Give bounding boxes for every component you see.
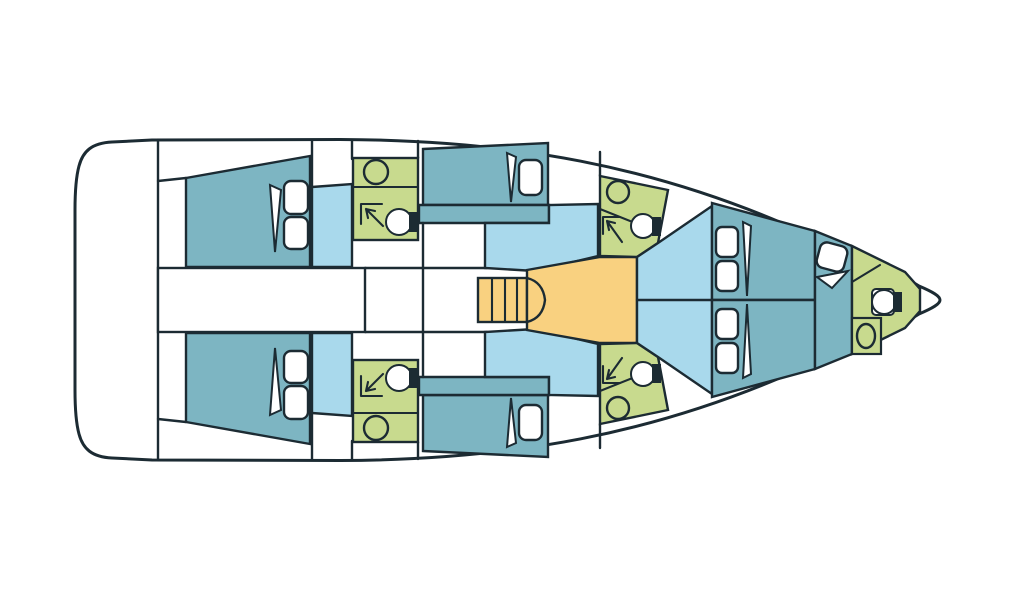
pillow-icon	[519, 160, 542, 195]
stair-steps	[478, 278, 527, 322]
pillow-icon	[519, 405, 542, 440]
toilet-icon	[386, 365, 419, 391]
pillow-icon	[815, 241, 849, 273]
bed-foot	[419, 377, 549, 395]
pillow-icon	[284, 351, 308, 383]
yacht-floor-plan: Sailing yacht deck plan — top view, bow …	[0, 0, 1024, 600]
yacht-deck-plan: Sailing yacht deck plan — top view, bow …	[0, 0, 1024, 600]
head-bow	[852, 246, 920, 354]
cabin-seat	[312, 333, 352, 416]
pillow-icon	[716, 309, 738, 339]
bed-foot	[419, 205, 549, 223]
pillow-icon	[284, 181, 308, 214]
toilet-icon	[631, 214, 661, 238]
pillow-icon	[716, 227, 738, 257]
toilet-icon	[386, 209, 419, 235]
head-aft-port	[353, 158, 419, 240]
pillow-icon	[716, 261, 738, 291]
sink-icon	[852, 318, 881, 354]
cabin-seat	[312, 184, 352, 267]
toilet-icon	[872, 289, 902, 315]
head-aft-starboard	[353, 360, 419, 442]
toilet-icon	[631, 362, 661, 386]
pillow-icon	[284, 217, 308, 249]
engine-compartment	[158, 268, 365, 332]
pillow-icon	[284, 386, 308, 419]
pillow-icon	[716, 343, 738, 373]
companionway-stairs	[478, 278, 545, 322]
